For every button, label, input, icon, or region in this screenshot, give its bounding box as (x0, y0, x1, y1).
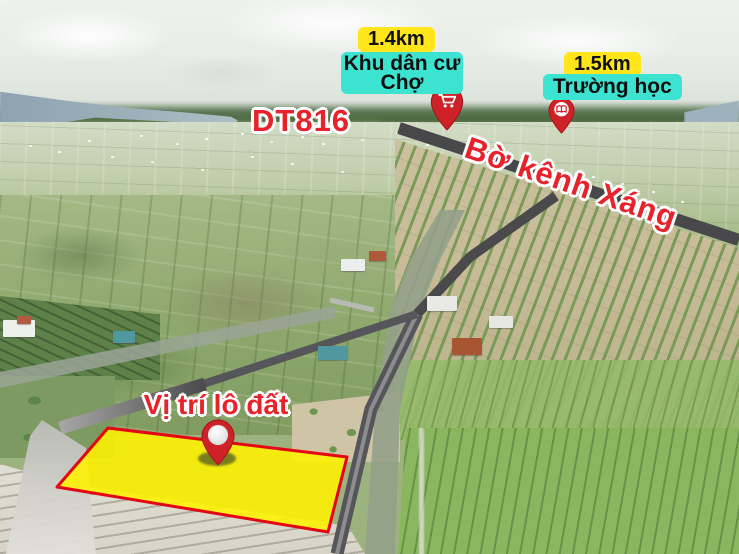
plot-label: Vị trí lô đất (126, 389, 306, 421)
highway-label: DT816 (252, 103, 350, 139)
building (427, 296, 457, 311)
aerial-map: 1.4km Khu dân cư Chợ 1.5km Trường học DT… (0, 0, 739, 554)
school-marker (548, 97, 575, 134)
plot-marker (197, 419, 239, 466)
building (318, 346, 348, 360)
bridge (330, 300, 374, 310)
building (369, 251, 386, 261)
building (17, 316, 31, 324)
building (452, 338, 482, 355)
market-distance-badge: 1.4km (358, 27, 435, 52)
school-name-badge: Trường học (543, 74, 682, 100)
market-name-badge: Khu dân cư Chợ (341, 52, 463, 94)
canal-left (0, 306, 335, 388)
building (113, 331, 135, 343)
building (341, 259, 365, 271)
building (489, 316, 513, 328)
